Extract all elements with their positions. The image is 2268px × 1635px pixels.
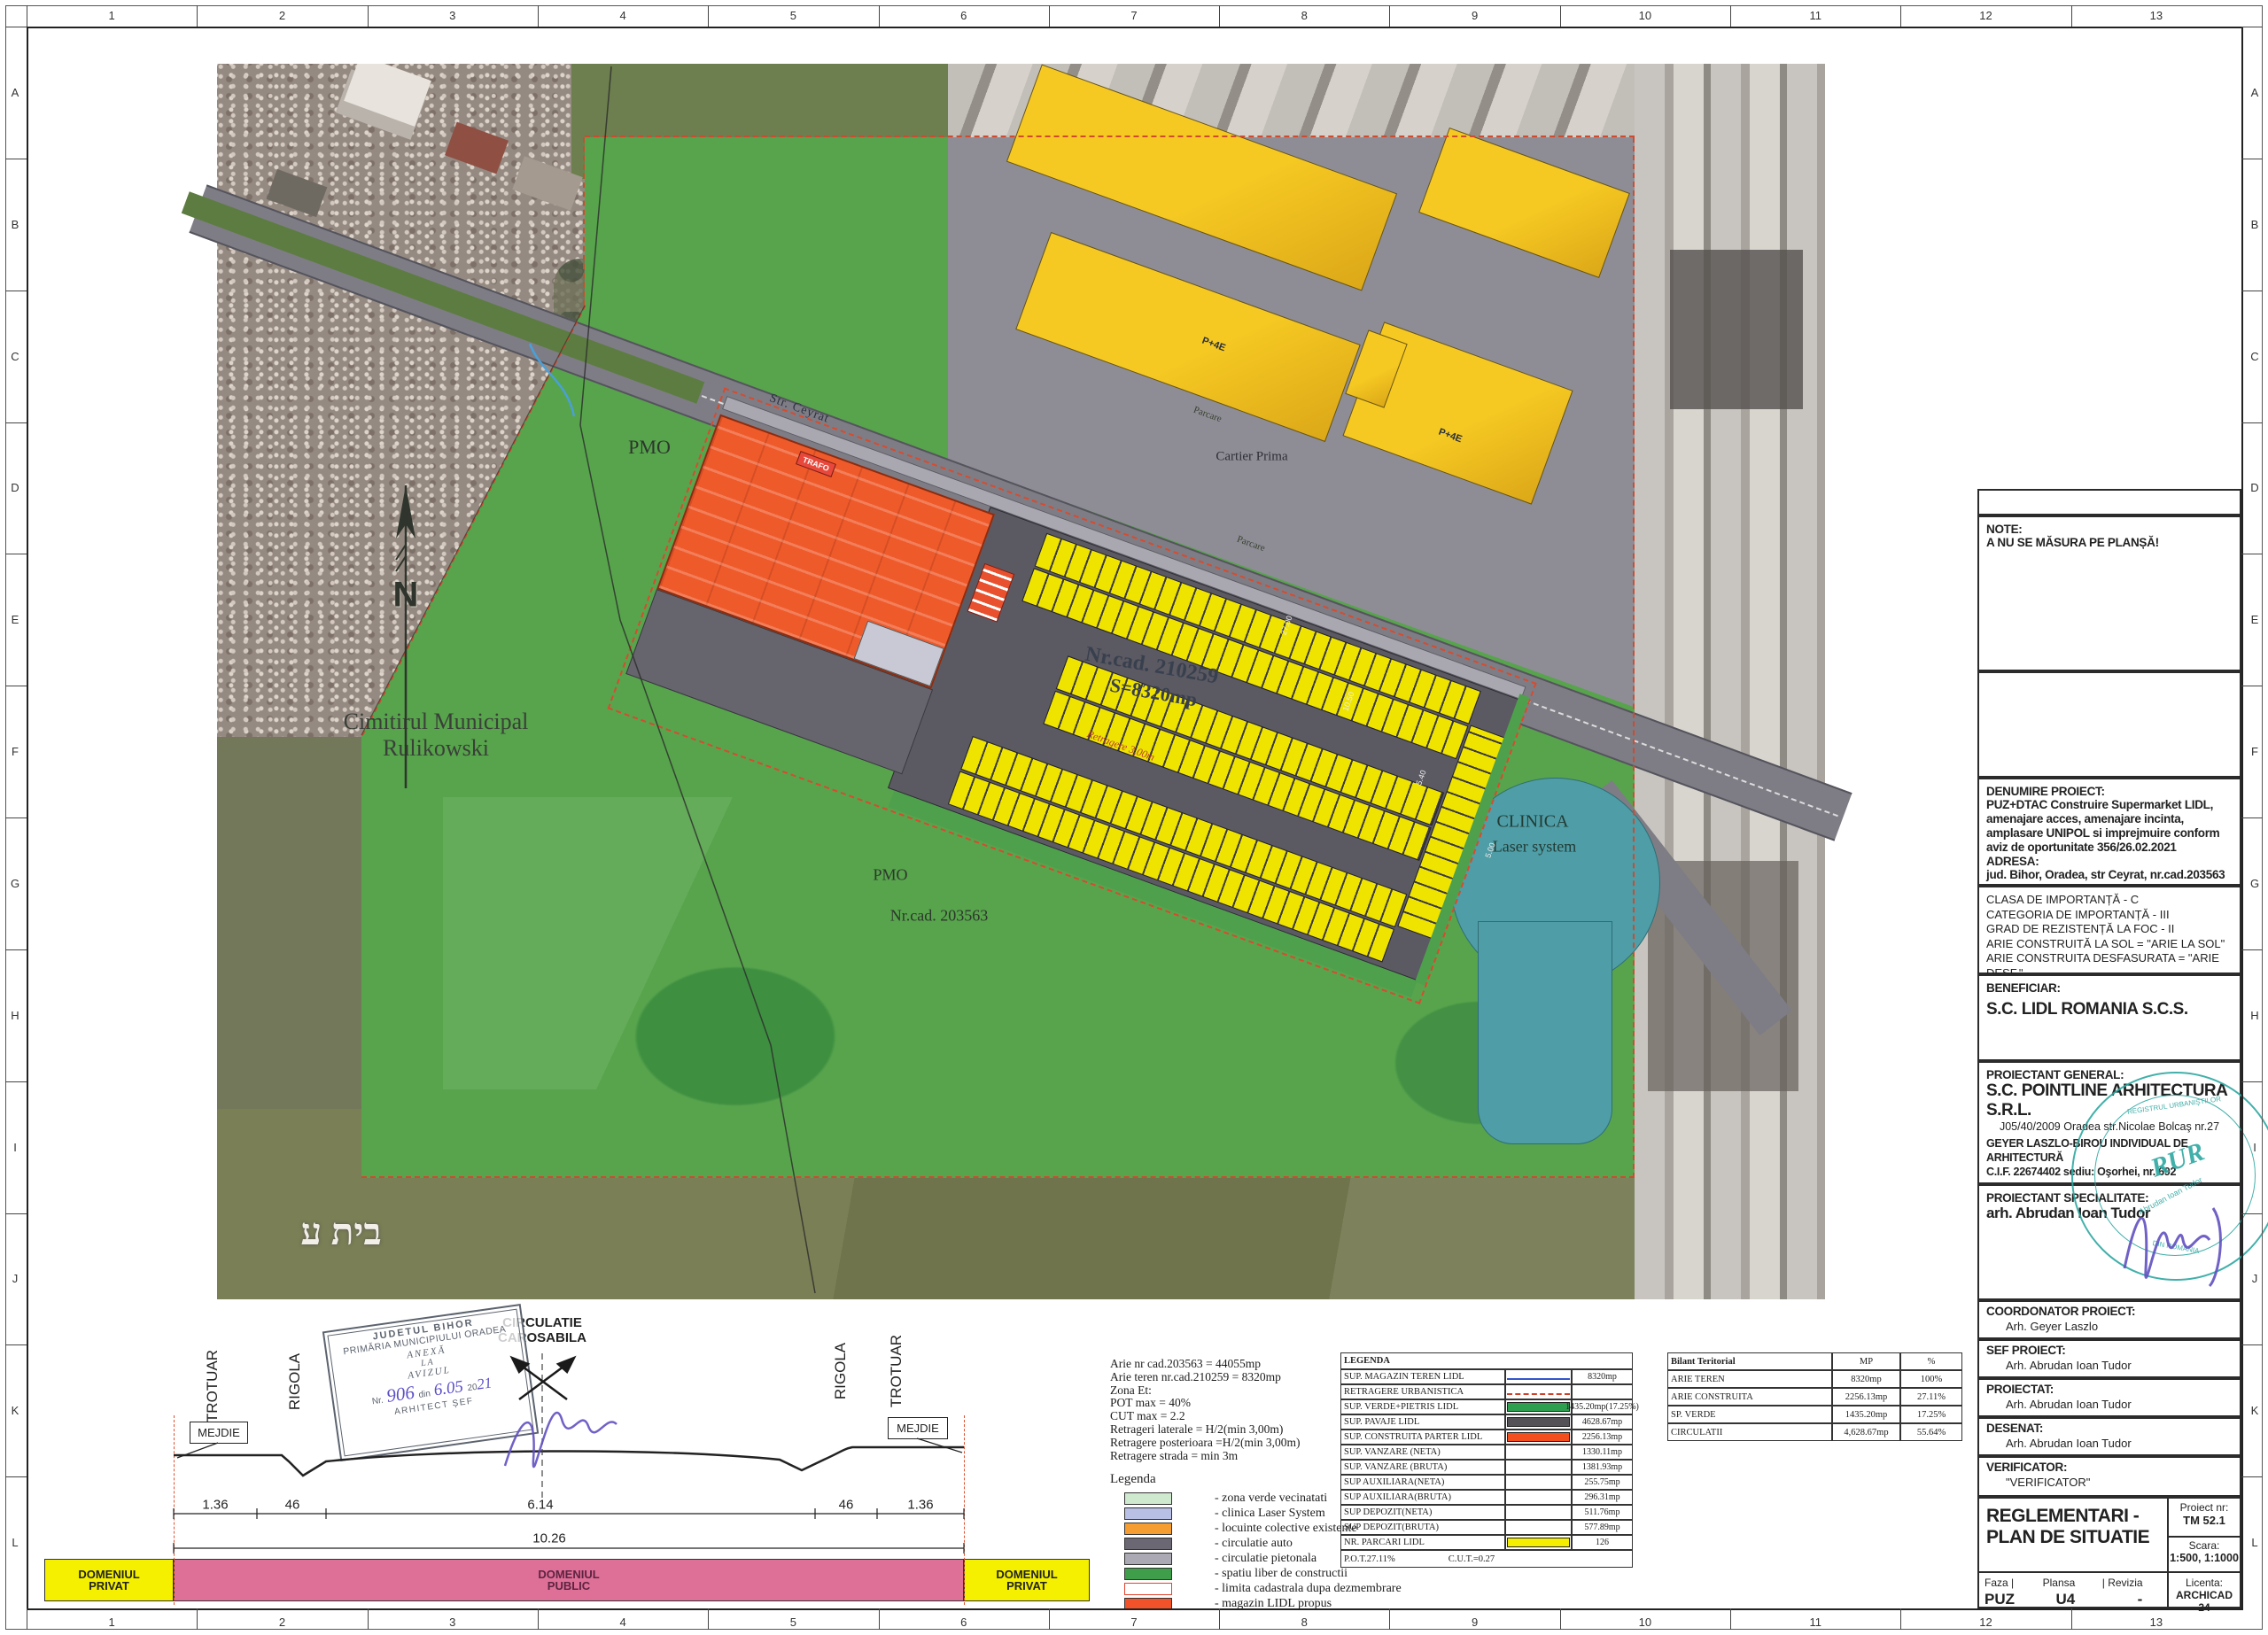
bilant-row: ARIE CONSTRUITA2256.13mp27.11% — [1667, 1388, 1962, 1406]
ruler-column-label: 1 — [27, 7, 197, 23]
legenda-row: RETRAGERE URBANISTICA — [1340, 1384, 1633, 1399]
aviz-nr-value: 906 — [385, 1382, 416, 1406]
bilant-row-label: ARIE CONSTRUITA — [1667, 1388, 1832, 1406]
legenda-row-swatch — [1505, 1384, 1572, 1399]
legenda-row-swatch — [1505, 1414, 1572, 1430]
ruler-tick — [2241, 949, 2263, 950]
note-box: NOTE: A NU SE MĂSURA PE PLANȘĂ! — [1977, 515, 2241, 671]
ruler-column-label: 9 — [1389, 7, 1559, 23]
beneficiar-box: BENEFICIAR: S.C. LIDL ROMANIA S.C.S. — [1977, 974, 2241, 1061]
property-line-right — [964, 1415, 965, 1605]
legenda-row-label: SUP. MAGAZIN TEREN LIDL — [1340, 1369, 1505, 1384]
ruler-column-label: 13 — [2071, 7, 2241, 23]
aviz-stamp: JUDETUL BIHOR PRIMĂRIA MUNICIPIULUI ORAD… — [322, 1304, 539, 1461]
verificator-box: VERIFICATOR: "VERIFICATOR" — [1977, 1456, 2241, 1497]
bilant-row: ARIE TEREN8320mp100% — [1667, 1370, 1962, 1388]
aviz-din-value: 6.05 — [432, 1377, 464, 1399]
bilant-row-mp: 4,628.67mp — [1832, 1423, 1900, 1441]
legend-swatch-color — [1124, 1507, 1172, 1520]
legend-swatch-label: - magazin LIDL propus — [1215, 1597, 1332, 1611]
ruler-row-label: H — [7, 949, 23, 1081]
ruler-row-label: D — [7, 422, 23, 554]
ruler-row-label: C — [2247, 291, 2263, 422]
ruler-row-label: G — [2247, 817, 2263, 949]
legenda-header: LEGENDA — [1340, 1352, 1633, 1369]
scara-cell: Scara: 1:500, 1:1000 — [2169, 1536, 2240, 1571]
legenda-row-value: 2256.13mp — [1572, 1430, 1633, 1445]
beneficiar-name: S.C. LIDL ROMANIA S.C.S. — [1986, 1000, 2233, 1019]
faza-row: Faza | Plansa | Revizia PUZ U4 - — [1979, 1571, 2169, 1610]
pmo-label-2: PMO — [873, 866, 907, 885]
ruler-tick — [1219, 5, 1220, 27]
ruler-tick — [2241, 554, 2263, 554]
ruler-column-label: 2 — [197, 1614, 367, 1630]
ruler-tick — [2241, 817, 2263, 818]
bilant-title: Bilant Teritorial — [1667, 1352, 1832, 1370]
role-heading: DESENAT: — [1986, 1422, 2233, 1435]
ruler-tick — [5, 686, 27, 686]
revizia-value: - — [2138, 1591, 2143, 1608]
legenda-row-swatch — [1505, 1520, 1572, 1535]
sheet-title-cell: REGLEMENTARI - PLAN DE SITUATIE — [1979, 1499, 2169, 1571]
ruler-row-label: A — [2247, 27, 2263, 159]
ruler-tick — [5, 422, 27, 423]
parameter-line: Retrageri laterale = H/2(min 3,00m) — [1110, 1423, 1301, 1437]
ruler-column-label: 12 — [1900, 7, 2070, 23]
proiectant-general-box: PROIECTANT GENERAL: S.C. POINTLINE ARHIT… — [1977, 1061, 2241, 1184]
legenda-row-swatch — [1505, 1445, 1572, 1460]
legend-swatch-color — [1124, 1568, 1172, 1580]
ruler-tick — [2241, 159, 2263, 159]
ruler-tick — [368, 1608, 369, 1630]
field-left — [217, 737, 377, 1109]
ruler-row-label: K — [2247, 1344, 2263, 1476]
north-letter: N — [393, 576, 419, 616]
bilant-row-label: SP. VERDE — [1667, 1406, 1832, 1423]
ruler-tick — [708, 5, 709, 27]
ruler-tick — [879, 5, 880, 27]
ruler-row-label: B — [7, 159, 23, 291]
cut-value: C.U.T.=0.27 — [1449, 1554, 1495, 1564]
ruler-row-label: F — [2247, 686, 2263, 817]
ruler-column-label: 7 — [1049, 7, 1219, 23]
bilant-row-label: ARIE TEREN — [1667, 1370, 1832, 1388]
legenda-row-swatch — [1505, 1369, 1572, 1384]
legenda-row-value: 126 — [1572, 1535, 1633, 1550]
ruler-row-label: J — [7, 1213, 23, 1345]
legenda-row-value — [1572, 1384, 1633, 1399]
dim-total: 10.26 — [532, 1531, 566, 1546]
legenda-row: SUP. MAGAZIN TEREN LIDL8320mp — [1340, 1369, 1633, 1384]
rigola-left-label: RIGOLA — [286, 1353, 304, 1410]
proiect-nr-label: Proiect nr: — [2169, 1501, 2240, 1514]
ruler-tick — [2241, 1476, 2263, 1477]
legend-swatch-color — [1124, 1523, 1172, 1535]
role-heading: VERIFICATOR: — [1986, 1461, 2233, 1474]
ruler-row-label: D — [2247, 422, 2263, 554]
proiect-nr-value: TM 52.1 — [2169, 1514, 2240, 1527]
ruler-tick — [1560, 1608, 1561, 1630]
ruler-tick — [2071, 1608, 2072, 1630]
legend-swatch-item: - zona verde vecinatati — [1110, 1491, 1402, 1506]
ruler-row-label: K — [7, 1344, 23, 1476]
ruler-row-label: I — [7, 1081, 23, 1213]
ruler-column-label: 8 — [1219, 1614, 1389, 1630]
ruler-column-label: 11 — [1730, 1614, 1900, 1630]
role-name: Arh. Abrudan Ioan Tudor — [2006, 1437, 2233, 1450]
role-name: Arh. Abrudan Ioan Tudor — [2006, 1359, 2233, 1372]
proiectat-box: PROIECTAT: Arh. Abrudan Ioan Tudor — [1977, 1378, 2241, 1417]
ruler-tick — [2241, 291, 2263, 291]
ruler-row-label: G — [7, 817, 23, 949]
dim-136-left: 1.36 — [202, 1498, 228, 1513]
plansa-label: Plansa — [2043, 1577, 2076, 1589]
legenda-row: SUP. PAVAJE LIDL4628.67mp — [1340, 1414, 1633, 1430]
cad-203563-label: Nr.cad. 203563 — [890, 907, 988, 926]
ruler-column-label: 3 — [368, 1614, 538, 1630]
pg-name: S.C. POINTLINE ARHITECTURA S.R.L. — [1986, 1081, 2233, 1120]
legend-swatch-item: - limita cadastrala dupa dezmembrare — [1110, 1581, 1402, 1596]
ruler-tick — [1389, 5, 1390, 27]
ruler-tick — [5, 1344, 27, 1345]
pg-heading: PROIECTANT GENERAL: — [1986, 1068, 2233, 1081]
legenda-row-label: SUP. PAVAJE LIDL — [1340, 1414, 1505, 1430]
legenda-row-value: 8320mp — [1572, 1369, 1633, 1384]
coordonator-box: COORDONATOR PROIECT: Arh. Geyer Laszlo — [1977, 1300, 2241, 1339]
ruler-column-label: 3 — [368, 7, 538, 23]
ruler-column-label: 11 — [1730, 7, 1900, 23]
legend-swatch-item: - clinica Laser System — [1110, 1506, 1402, 1521]
ruler-column-label: 7 — [1049, 1614, 1219, 1630]
parameter-line: POT max = 40% — [1110, 1397, 1301, 1410]
faza-value: PUZ — [1984, 1591, 2015, 1608]
legend-swatch-item: - spatiu liber de constructii — [1110, 1566, 1402, 1581]
ruler-column-label: 5 — [708, 1614, 878, 1630]
pg-line2: GEYER LASZLO-BIROU INDIVIDUAL DE ARHITEC… — [1986, 1136, 2233, 1165]
parameter-line: Arie teren nr.cad.210259 = 8320mp — [1110, 1371, 1301, 1384]
bilant-row-pct: 100% — [1900, 1370, 1962, 1388]
dim-136-right: 1.36 — [907, 1498, 933, 1513]
ruler-tick — [1049, 5, 1050, 27]
legend-swatch-item: - magazin LIDL propus — [1110, 1596, 1402, 1611]
ruler-tick — [2241, 686, 2263, 686]
adresa-value: jud. Bihor, Oradea, str Ceyrat, nr.cad.2… — [1986, 868, 2233, 882]
legenda-row: SUP. VANZARE (NETA)1330.11mp — [1340, 1445, 1633, 1460]
licenta-value: ARCHICAD 24 — [2169, 1589, 2240, 1614]
ruler-tick — [708, 1608, 709, 1630]
ruler-tick — [5, 291, 27, 291]
ruler-tick — [538, 5, 539, 27]
ruler-tick — [27, 5, 27, 27]
bilant-row-pct: 17.25% — [1900, 1406, 1962, 1423]
ruler-tick — [5, 1476, 27, 1477]
legend-swatch-label: - clinica Laser System — [1215, 1507, 1325, 1521]
bilant-row: CIRCULATII4,628.67mp55.64% — [1667, 1423, 1962, 1441]
role-heading: SEF PROIECT: — [1986, 1344, 2233, 1357]
ruler-tick — [5, 949, 27, 950]
ruler-tick — [5, 817, 27, 818]
role-name: "VERIFICATOR" — [2006, 1476, 2233, 1489]
legenda-row-value: 296.31mp — [1572, 1490, 1633, 1505]
note-body: A NU SE MĂSURA PE PLANȘĂ! — [1986, 536, 2233, 550]
dark-roof — [1670, 250, 1803, 409]
ruler-tick — [5, 554, 27, 554]
sef-proiect-box: SEF PROIECT: Arh. Abrudan Ioan Tudor — [1977, 1339, 2241, 1378]
legend-swatch-item: - circulatie auto — [1110, 1536, 1402, 1551]
pmo-label-1: PMO — [628, 436, 671, 459]
legenda-row: SUP. CONSTRUITA PARTER LIDL2256.13mp — [1340, 1430, 1633, 1445]
ruler-tick — [2241, 422, 2263, 423]
legenda-row-swatch — [1505, 1535, 1572, 1550]
legenda-row-value: 4628.67mp — [1572, 1414, 1633, 1430]
ruler-tick — [5, 1213, 27, 1214]
sheet-title: REGLEMENTARI - PLAN DE SITUATIE — [1986, 1506, 2160, 1548]
legenda-row-swatch — [1505, 1475, 1572, 1490]
rigola-right-label: RIGOLA — [832, 1343, 850, 1399]
adresa-heading: ADRESA: — [1986, 855, 2233, 868]
legenda-row-swatch — [1505, 1460, 1572, 1475]
ruler-tick — [1560, 5, 1561, 27]
licenta-cell: Licenta: ARCHICAD 24 — [2169, 1571, 2240, 1610]
legenda-row-swatch — [1505, 1430, 1572, 1445]
domeniul-public-bar: DOMENIUL PUBLIC — [174, 1559, 964, 1601]
legend-swatch-item: - circulatie pietonala — [1110, 1551, 1402, 1566]
ruler-row-label: L — [2247, 1476, 2263, 1608]
proiectant-specialitate-box: PROIECTANT SPECIALITATE: arh. Abrudan Io… — [1977, 1184, 2241, 1300]
bilant-row-mp: 2256.13mp — [1832, 1388, 1900, 1406]
legend-swatch-color — [1124, 1583, 1172, 1595]
legenda-row-value: 577.89mp — [1572, 1520, 1633, 1535]
legend-swatch-label: - circulatie auto — [1215, 1537, 1293, 1551]
role-heading: COORDONATOR PROIECT: — [1986, 1305, 2233, 1318]
ruler-row-label: C — [7, 291, 23, 422]
parameter-line: Retragere posterioara =H/2(min 3,00m) — [1110, 1437, 1301, 1450]
legend-swatch-color — [1124, 1598, 1172, 1610]
plansa-value: U4 — [2055, 1591, 2075, 1608]
ruler-tick — [5, 1081, 27, 1082]
legend-swatch-item: - locuinte colective existente — [1110, 1521, 1402, 1536]
ps-name: arh. Abrudan Ioan Tudor — [1986, 1205, 2233, 1222]
domeniul-privat-left: DOMENIUL PRIVAT — [44, 1559, 174, 1601]
ruler-tick — [1049, 1608, 1050, 1630]
legenda-row-value: 1330.11mp — [1572, 1445, 1633, 1460]
ruler-column-label: 10 — [1560, 7, 1730, 23]
ruler-tick — [197, 1608, 198, 1630]
legenda-row-value: 1435.20mp(17.25%) — [1572, 1399, 1633, 1414]
box-empty-top — [1977, 489, 2241, 515]
note-title: NOTE: — [1986, 523, 2233, 536]
bilant-row-mp: 1435.20mp — [1832, 1406, 1900, 1423]
ruler-column-label: 2 — [197, 7, 367, 23]
proiect-nr-cell: Proiect nr: TM 52.1 — [2169, 1499, 2240, 1536]
ruler-column-label: 1 — [27, 1614, 197, 1630]
ruler-tick — [879, 1608, 880, 1630]
legenda-row-label: SUP. VANZARE (NETA) — [1340, 1445, 1505, 1460]
legenda-row-label: SUP. VERDE+PIETRIS LIDL — [1340, 1399, 1505, 1414]
ruler-row-label: B — [2247, 159, 2263, 291]
ruler-column-label: 6 — [879, 1614, 1049, 1630]
ruler-row-label: I — [2247, 1081, 2263, 1213]
legenda-row: SUP. VERDE+PIETRIS LIDL1435.20mp(17.25%) — [1340, 1399, 1633, 1414]
parameter-line: Arie nr cad.203563 = 44055mp — [1110, 1358, 1301, 1371]
legend-swatch-color — [1124, 1492, 1172, 1505]
ruler-column-label: 4 — [538, 7, 708, 23]
ruler-row-label: E — [7, 554, 23, 686]
box-empty-mid — [1977, 671, 2241, 778]
revizia-label: | Revizia — [2102, 1577, 2143, 1589]
ps-heading: PROIECTANT SPECIALITATE: — [1986, 1191, 2233, 1205]
importanta-line: ARIE CONSTRUITĂ LA SOL = "ARIE LA SOL" — [1986, 937, 2233, 952]
clinica-label-2: Laser system — [1493, 838, 1576, 856]
cemetery-label: Cimitirul Municipal Rulikowski — [344, 709, 529, 762]
ruler-tick — [5, 27, 27, 27]
parameters-block: Arie nr cad.203563 = 44055mp Arie teren … — [1110, 1358, 1301, 1462]
ruler-column-label: 8 — [1219, 7, 1389, 23]
ruler-tick — [1900, 5, 1901, 27]
legenda-row-label: SUP. CONSTRUITA PARTER LIDL — [1340, 1430, 1505, 1445]
importanta-line: CLASA DE IMPORTANȚĂ - C — [1986, 893, 2233, 908]
ruler-tick — [2241, 27, 2263, 27]
pg-line3: C.I.F. 22674402 sediu: Oşorhei, nr. 692 — [1986, 1165, 2233, 1179]
ruler-tick — [1730, 1608, 1731, 1630]
property-line-left — [174, 1415, 175, 1605]
ruler-row-label: A — [7, 27, 23, 159]
legenda-row-swatch — [1505, 1505, 1572, 1520]
ruler-tick — [2241, 1081, 2263, 1082]
ruler-tick — [368, 5, 369, 27]
bilant-col-pct: % — [1900, 1352, 1962, 1370]
legenda-swatches: Legenda - zona verde vecinatati- clinica… — [1110, 1472, 1402, 1611]
mejdie-right-box: MEJDIE — [888, 1417, 948, 1439]
ruler-row-label: F — [7, 686, 23, 817]
ruler-tick — [1900, 1608, 1901, 1630]
ruler-tick — [1389, 1608, 1390, 1630]
legenda-row-value: 511.76mp — [1572, 1505, 1633, 1520]
dim-614: 6.14 — [527, 1498, 553, 1513]
role-name: Arh. Geyer Laszlo — [2006, 1320, 2233, 1333]
role-heading: PROIECTAT: — [1986, 1383, 2233, 1396]
ruler-tick — [197, 5, 198, 27]
bilant-row: SP. VERDE1435.20mp17.25% — [1667, 1406, 1962, 1423]
denumire-heading: DENUMIRE PROIECT: — [1986, 785, 2233, 798]
ruler-row-label: H — [2247, 949, 2263, 1081]
dim-46-right: 46 — [839, 1498, 854, 1513]
trotuar-right-label: TROTUAR — [888, 1335, 905, 1407]
legend-swatch-label: - zona verde vecinatati — [1215, 1492, 1327, 1506]
ruler-column-label: 10 — [1560, 1614, 1730, 1630]
legenda-row-value: 1381.93mp — [1572, 1460, 1633, 1475]
parameter-line: CUT max = 2.2 — [1110, 1410, 1301, 1423]
ruler-tick — [5, 159, 27, 159]
aviz-din-label: din — [418, 1389, 431, 1400]
desenat-box: DESENAT: Arh. Abrudan Ioan Tudor — [1977, 1417, 2241, 1456]
ruler-column-label: 5 — [708, 7, 878, 23]
domeniul-privat-right: DOMENIUL PRIVAT — [964, 1559, 1090, 1601]
legenda-row-value: 255.75mp — [1572, 1475, 1633, 1490]
aviz-nr-label: Nr. — [371, 1396, 384, 1407]
denumire-description: PUZ+DTAC Construire Supermarket LIDL, am… — [1986, 798, 2233, 855]
denumire-box: DENUMIRE PROIECT: PUZ+DTAC Construire Su… — [1977, 778, 2241, 886]
legend-swatch-label: - circulatie pietonala — [1215, 1552, 1317, 1566]
ruler-column-label: 12 — [1900, 1614, 2070, 1630]
clinic-blob-stem — [1478, 921, 1612, 1144]
bilant-col-mp: MP — [1832, 1352, 1900, 1370]
aviz-year-hand: 21 — [476, 1374, 493, 1392]
parameter-line: Retragere strada = min 3m — [1110, 1450, 1301, 1463]
ruler-tick — [2071, 5, 2072, 27]
cartier-prima-label: Cartier Prima — [1216, 450, 1287, 465]
clinica-label: CLINICA — [1496, 812, 1568, 833]
legend-swatch-label: - limita cadastrala dupa dezmembrare — [1215, 1582, 1402, 1596]
legend-swatch-color — [1124, 1553, 1172, 1565]
legenda-row-swatch — [1505, 1399, 1572, 1414]
beneficiar-heading: BENEFICIAR: — [1986, 981, 2233, 995]
scara-value: 1:500, 1:1000 — [2169, 1552, 2240, 1564]
ruler-tick — [1219, 1608, 1220, 1630]
legend-swatch-label: - locuinte colective existente — [1215, 1522, 1357, 1536]
ruler-row-label: J — [2247, 1213, 2263, 1345]
ruler-tick — [27, 1608, 27, 1630]
legend-swatch-color — [1124, 1538, 1172, 1550]
ruler-tick — [538, 1608, 539, 1630]
legenda-swatches-title: Legenda — [1110, 1472, 1402, 1487]
legenda-row-swatch — [1505, 1490, 1572, 1505]
scara-label: Scara: — [2169, 1539, 2240, 1552]
ruler-row-label: E — [2247, 554, 2263, 686]
bilant-row-label: CIRCULATII — [1667, 1423, 1832, 1441]
importanta-line: GRAD DE REZISTENȚĂ LA FOC - II — [1986, 922, 2233, 937]
bilant-table: Bilant Teritorial MP % ARIE TEREN8320mp1… — [1667, 1352, 1962, 1441]
ruler-row-label: L — [7, 1476, 23, 1608]
bilant-row-pct: 55.64% — [1900, 1423, 1962, 1441]
plan-sheet: בית ע P+4E P+4E — [0, 0, 2268, 1635]
ruler-tick — [2241, 1213, 2263, 1214]
legenda-row-label: RETRAGERE URBANISTICA — [1340, 1384, 1505, 1399]
dim-46-left: 46 — [285, 1498, 300, 1513]
ruler-column-label: 4 — [538, 1614, 708, 1630]
ruler-tick — [2241, 1344, 2263, 1345]
ruler-tick — [1730, 5, 1731, 27]
licenta-label: Licenta: — [2169, 1577, 2240, 1589]
pg-reg: J05/40/2009 Oradea str.Nicolae Bolcaş nr… — [1986, 1120, 2233, 1133]
hebrew-map-label: בית ע — [300, 1212, 381, 1254]
bilant-row-mp: 8320mp — [1832, 1370, 1900, 1388]
ruler-column-label: 9 — [1389, 1614, 1559, 1630]
importanta-box: CLASA DE IMPORTANȚĂ - C CATEGORIA DE IMP… — [1977, 886, 2241, 974]
ruler-column-label: 6 — [879, 7, 1049, 23]
legend-swatch-label: - spatiu liber de constructii — [1215, 1567, 1348, 1581]
importanta-line: CATEGORIA DE IMPORTANȚĂ - III — [1986, 908, 2233, 923]
faza-label: Faza | — [1984, 1577, 2014, 1589]
trotuar-left-label: TROTUAR — [204, 1350, 221, 1422]
mejdie-left-box: MEJDIE — [190, 1422, 248, 1444]
ruler-column-label: 13 — [2071, 1614, 2241, 1630]
bilant-row-pct: 27.11% — [1900, 1388, 1962, 1406]
role-name: Arh. Abrudan Ioan Tudor — [2006, 1398, 2233, 1411]
parameter-line: Zona Et: — [1110, 1384, 1301, 1398]
titleblock-bottom: REGLEMENTARI - PLAN DE SITUATIE Faza | P… — [1977, 1497, 2241, 1608]
